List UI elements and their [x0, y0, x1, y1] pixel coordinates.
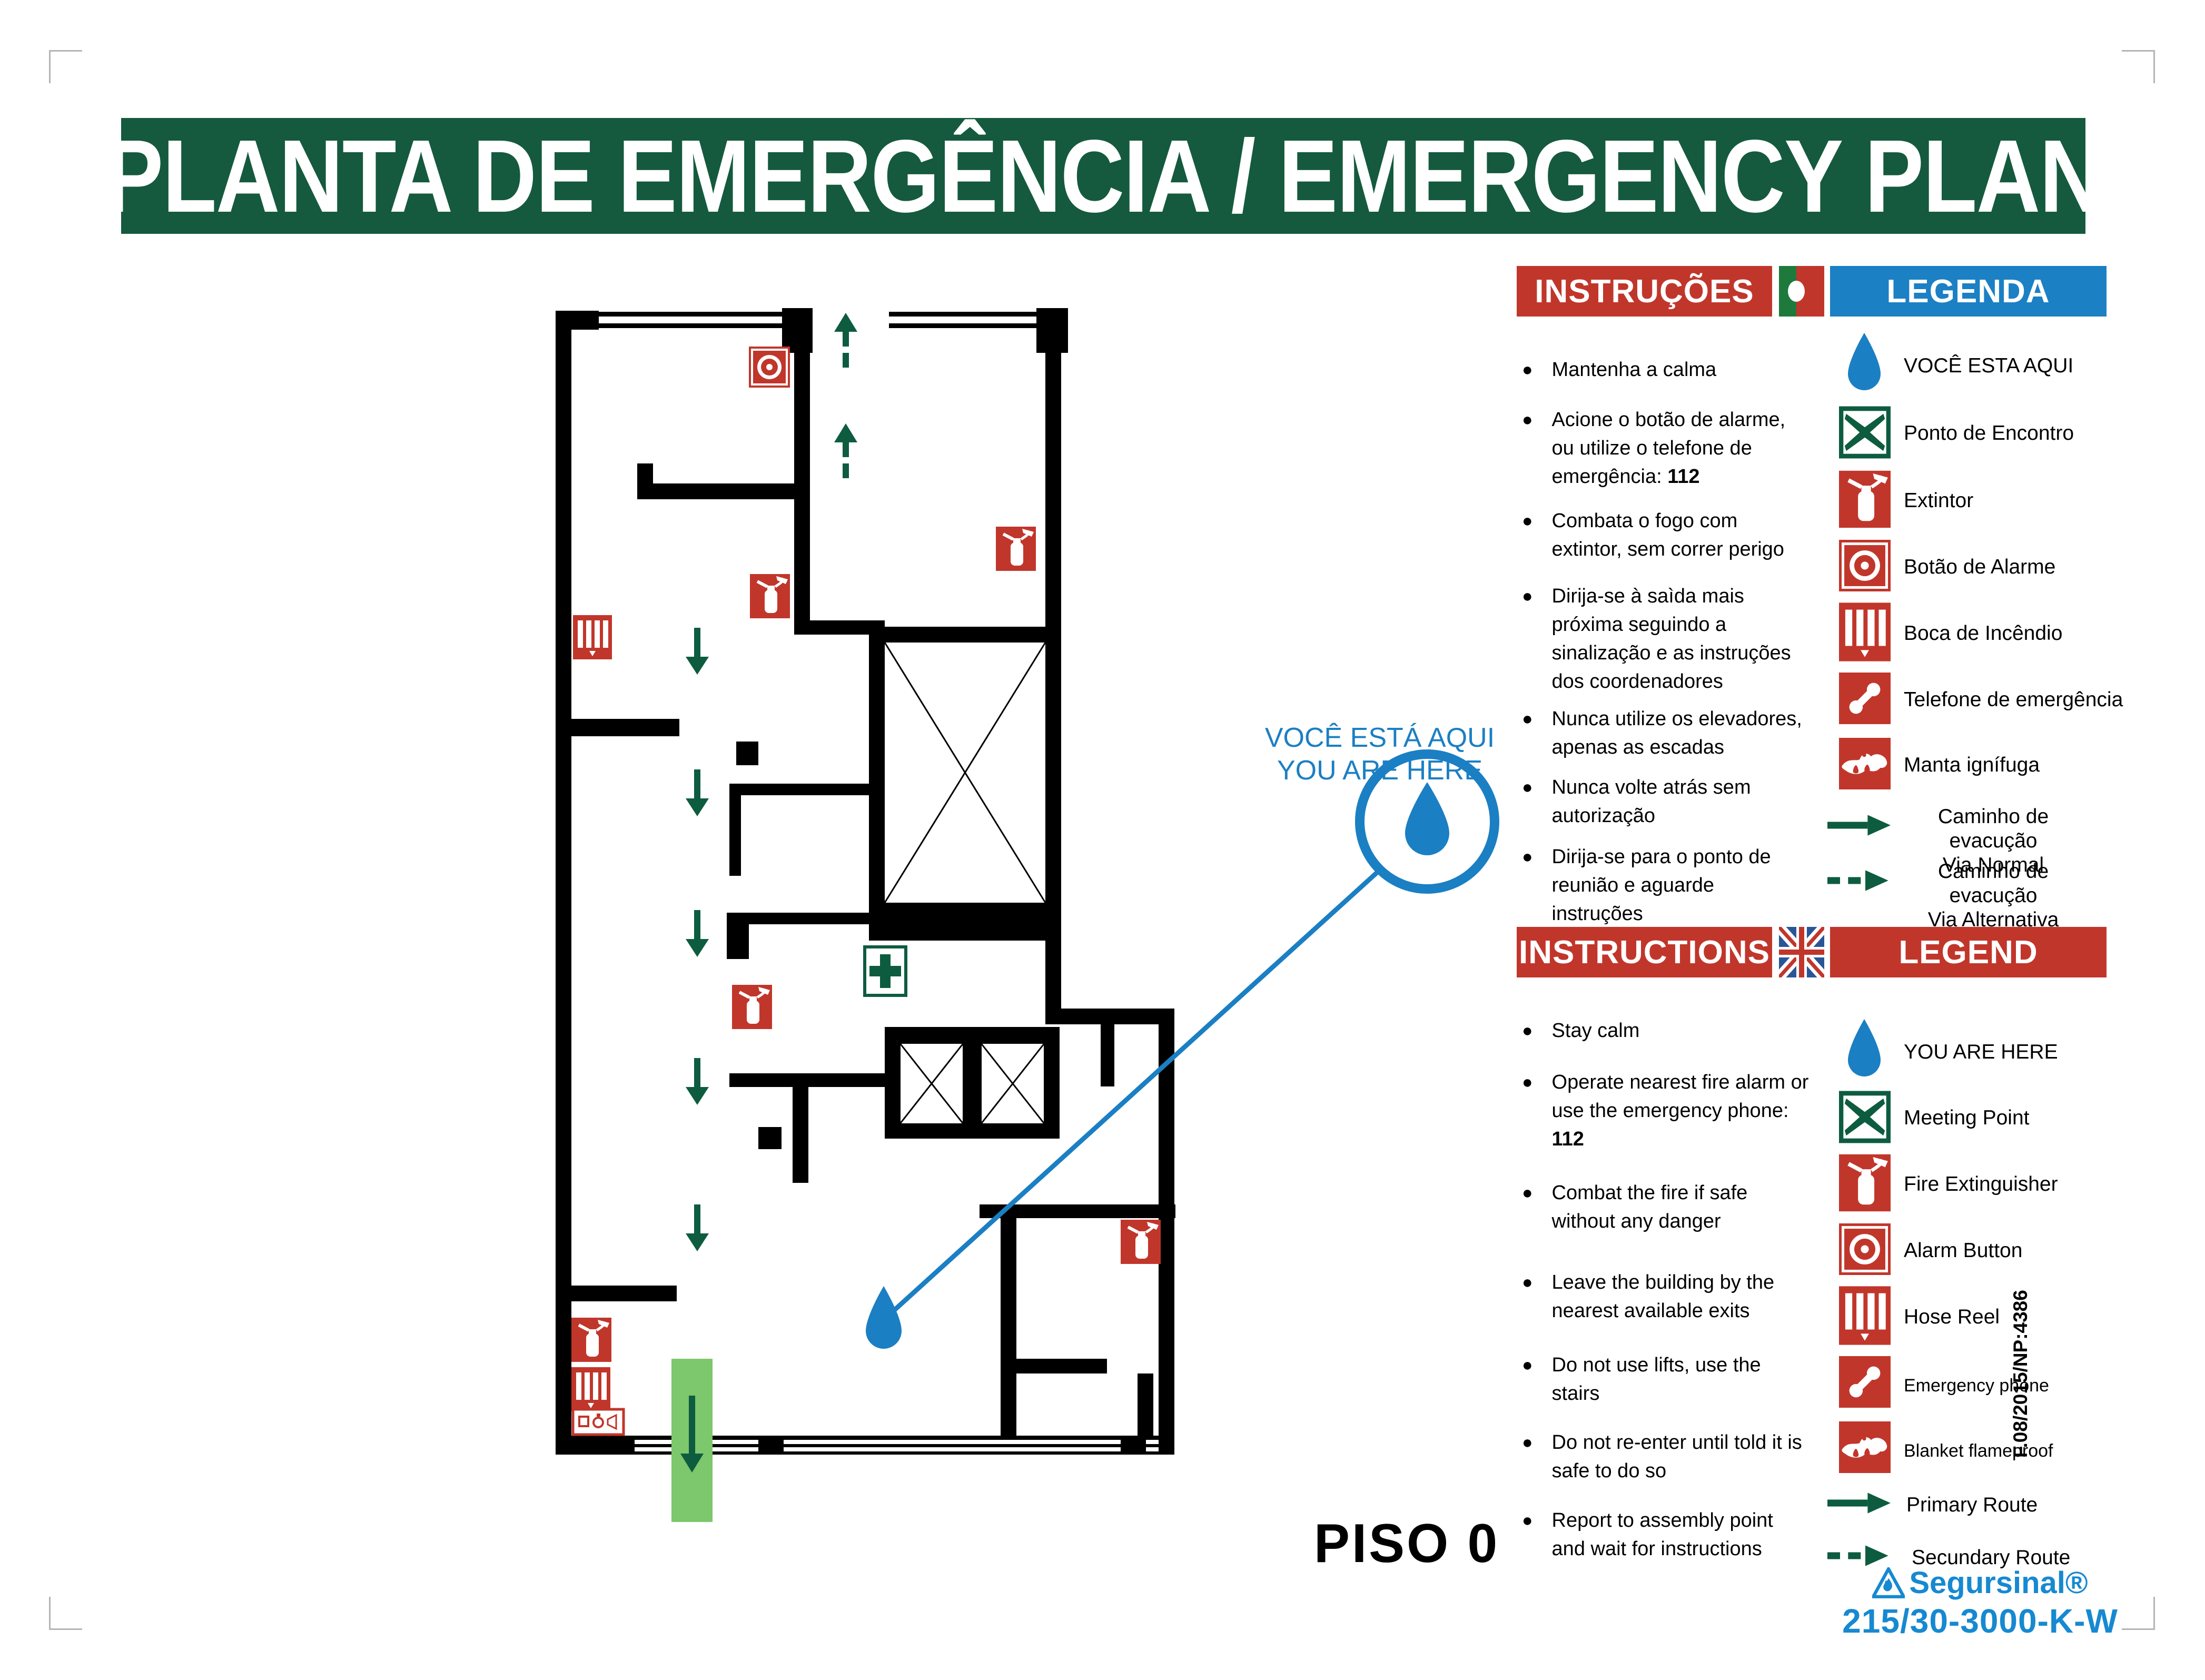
fire-extinguisher-icon: [1121, 1220, 1161, 1264]
wall: [729, 1073, 887, 1087]
you-are-here-drop-icon: [1846, 1014, 1883, 1082]
wall: [729, 913, 869, 924]
wall: [736, 742, 758, 765]
wall: [794, 620, 885, 635]
wall: [1001, 1359, 1107, 1373]
emergency-plan-sheet: { "title": "PLANTA DE EMERGÊNCIA / EMERG…: [0, 0, 2205, 1680]
en-instructions-header: INSTRUCTIONS: [1517, 927, 1772, 977]
pt-legend-header: LEGENDA: [1830, 266, 2107, 317]
en-instruction-3: ●Combat the fire if safe without any dan…: [1522, 1179, 1809, 1236]
hose-reel-icon: [573, 615, 612, 659]
you-are-here-drop-icon: [1846, 328, 1883, 396]
hose-reel-icon: [1839, 1286, 1891, 1345]
document-reference: F.08/2015/NP:4386: [2010, 1290, 2032, 1458]
window: [635, 1436, 1160, 1455]
window: [889, 312, 1039, 317]
wall: [571, 1286, 677, 1301]
pt-legend-label: Manta ignífuga: [1904, 753, 2040, 777]
alarm-button-icon: [1839, 536, 1891, 595]
wall: [1159, 1436, 1174, 1455]
exit-route-arrow-icon: [834, 423, 857, 457]
crop-mark: [2122, 50, 2155, 83]
wall: [793, 1087, 808, 1183]
hose-reel-icon: [1839, 602, 1891, 661]
meeting-point-icon: [1839, 401, 1891, 463]
en-legend-header: LEGEND: [1830, 927, 2107, 977]
pt-instruction-1: ●Mantenha a calma: [1522, 355, 1809, 384]
wall: [758, 1127, 782, 1149]
pt-instruction-6: ●Nunca volte atrás sem autorização: [1522, 773, 1809, 830]
hose-reel-icon: [571, 1367, 610, 1411]
fire-extinguisher-icon: [732, 985, 772, 1029]
wall: [869, 627, 885, 922]
floor-plan: VOCÊ ESTÁ AQUI YOU ARE HERE: [548, 290, 1517, 1533]
exit-route-arrow-icon: [686, 628, 709, 675]
pt-legend-label: VOCÊ ESTA AQUI: [1904, 354, 2073, 378]
pt-legend-label: Telefone de emergência: [1904, 688, 2123, 712]
pt-legend-label: Botão de Alarme: [1904, 555, 2055, 579]
route-arrow-dashed-icon: [1827, 1544, 1891, 1567]
wall: [729, 784, 741, 876]
wall: [1121, 1436, 1146, 1455]
en-legend-label: Primary Route: [1906, 1493, 2038, 1517]
pt-legend-label: Extintor: [1904, 489, 1973, 513]
window: [599, 323, 783, 328]
brand-footer: Segursinal® 215/30-3000-K-W: [1827, 1565, 2133, 1641]
fire-extinguisher-icon: [1839, 470, 1891, 529]
en-legend-label: Meeting Point: [1904, 1106, 2029, 1130]
wall: [637, 483, 800, 499]
alarm-button-icon: [749, 347, 790, 388]
wall: [758, 1436, 784, 1455]
pt-instructions-header: INSTRUÇÕES: [1517, 266, 1772, 317]
window: [599, 312, 783, 317]
floor-label: PISO 0: [1314, 1513, 1499, 1575]
wall: [727, 913, 749, 959]
uk-flag-icon: [1779, 927, 1824, 977]
en-instruction-7: ●Report to assembly point and wait for i…: [1522, 1506, 1809, 1563]
wall: [869, 903, 1061, 941]
wall: [729, 784, 869, 795]
brand-name: Segursinal®: [1909, 1565, 2088, 1600]
wall: [637, 463, 653, 499]
en-legend-label: Alarm Button: [1904, 1239, 2022, 1263]
wall: [556, 311, 571, 1455]
wall: [556, 311, 599, 330]
fire-blanket-icon: [1839, 1419, 1891, 1476]
exit-route-arrow-icon: [686, 1204, 709, 1251]
en-instruction-1: ●Stay calm: [1522, 1016, 1809, 1045]
elevator-box: [981, 1043, 1045, 1124]
wall: [571, 719, 679, 736]
fire-extinguisher-icon: [571, 1318, 611, 1362]
route-dash: [843, 463, 849, 478]
exit-route-arrow-icon: [686, 1058, 709, 1105]
en-instruction-2: ●Operate nearest fire alarm or use the e…: [1522, 1068, 1809, 1153]
route-dash: [843, 353, 849, 368]
en-legend-label: YOU ARE HERE: [1904, 1040, 2058, 1064]
window: [889, 323, 1039, 328]
pt-instruction-2: ●Acione o botão de alarme, ou utilize o …: [1522, 406, 1809, 491]
crop-mark: [49, 50, 82, 83]
pt-legend-label: Caminho de evacuçãoVia Alternativa: [1893, 859, 2093, 932]
wall: [1159, 1009, 1174, 1455]
brand-model: 215/30-3000-K-W: [1827, 1602, 2133, 1641]
callout-line2: YOU ARE HERE: [1277, 755, 1482, 786]
elevator-box: [899, 1043, 964, 1124]
wall: [1001, 1218, 1016, 1436]
en-legend-label: Hose Reel: [1904, 1305, 2000, 1329]
exit-route-arrow-icon: [686, 910, 709, 957]
en-instruction-4: ●Leave the building by the nearest avail…: [1522, 1268, 1809, 1325]
en-instruction-6: ●Do not re-enter until told it is safe t…: [1522, 1428, 1809, 1485]
alarm-panel-icon: [573, 1409, 624, 1435]
fire-extinguisher-icon: [996, 527, 1036, 571]
en-instruction-5: ●Do not use lifts, use the stairs: [1522, 1351, 1809, 1408]
pt-instruction-5: ●Nunca utilize os elevadores, apenas as …: [1522, 705, 1809, 762]
segursinal-logo-icon: [1872, 1567, 1905, 1599]
page-title: PLANTA DE EMERGÊNCIA / EMERGENCY PLAN: [104, 117, 2103, 235]
callout-line1: VOCÊ ESTÁ AQUI: [1265, 723, 1495, 753]
you-are-here-drop-icon: [866, 1286, 902, 1349]
wall: [556, 1436, 635, 1455]
pt-instruction-7: ●Dirija-se para o ponto de reunião e agu…: [1522, 843, 1809, 928]
fire-extinguisher-icon: [750, 574, 790, 618]
portugal-flag-icon: [1779, 266, 1824, 317]
emergency-phone-icon: [1839, 669, 1891, 728]
exit-route-arrow-icon: [834, 313, 857, 347]
pt-legend-label: Ponto de Encontro: [1904, 421, 2074, 446]
pt-legend-label: Boca de Incêndio: [1904, 621, 2062, 646]
title-banner: PLANTA DE EMERGÊNCIA / EMERGENCY PLAN: [121, 118, 2085, 234]
route-arrow-solid-icon: [1827, 1491, 1891, 1515]
emergency-phone-icon: [1839, 1352, 1891, 1411]
meeting-point-icon: [1839, 1086, 1891, 1148]
wall: [1138, 1373, 1153, 1436]
wall: [1101, 1024, 1114, 1086]
alarm-button-icon: [1839, 1220, 1891, 1279]
route-arrow-dashed-icon: [1827, 869, 1891, 892]
pt-instruction-3: ●Combata o fogo com extintor, sem correr…: [1522, 507, 1809, 564]
en-legend-label: Fire Extinguisher: [1904, 1172, 2058, 1197]
first-aid-cross-icon: [865, 947, 906, 995]
route-arrow-solid-icon: [1827, 814, 1891, 837]
wall: [869, 627, 1061, 643]
crop-mark: [49, 1597, 82, 1630]
pt-instruction-4: ●Dirija-se à saìda mais próxima seguindo…: [1522, 582, 1809, 696]
exit-route-arrow-icon: [686, 769, 709, 816]
wall: [1045, 1009, 1174, 1024]
fire-extinguisher-icon: [1839, 1153, 1891, 1212]
fire-blanket-icon: [1839, 735, 1891, 792]
